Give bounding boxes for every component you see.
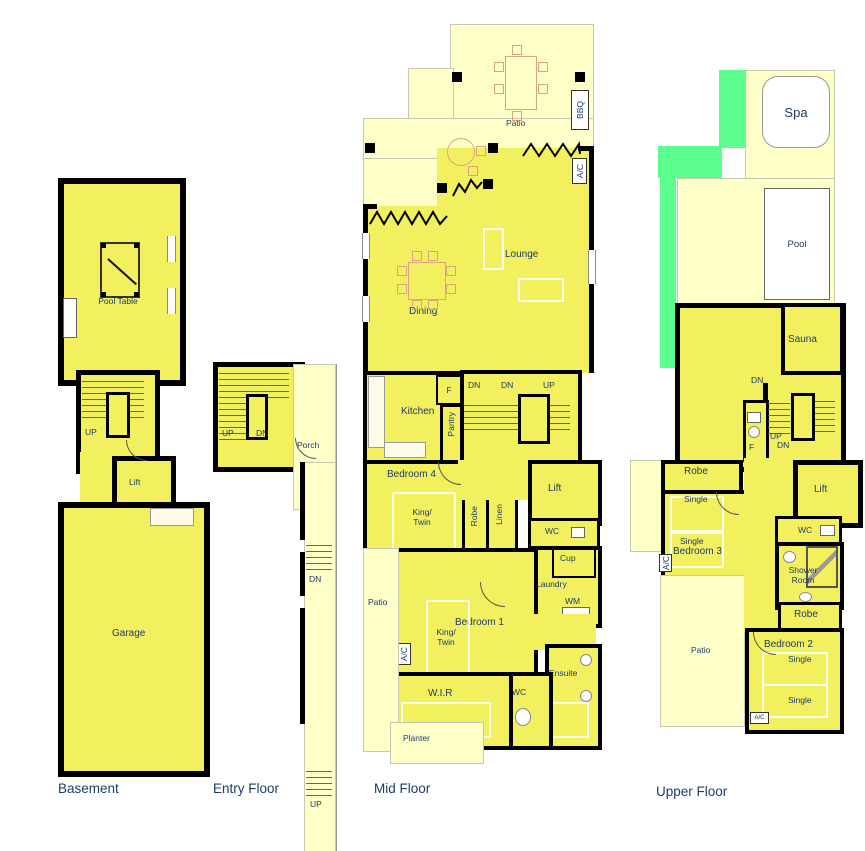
basement-lift-label: Lift (129, 478, 140, 488)
fridge-label: F (446, 385, 451, 395)
robe-label: Robe (469, 506, 479, 526)
upper-wc-label: WC (798, 526, 812, 536)
lounge-label: Lounge (505, 249, 538, 260)
laundry-label: Laundry (536, 580, 567, 590)
ac-label: A/C (754, 715, 764, 721)
entry-up-label: UP (222, 429, 234, 439)
wir-label: W.I.R (428, 688, 452, 699)
ac-label: A/C (661, 556, 671, 570)
patio-chair (494, 84, 504, 94)
dining-chair (428, 251, 438, 261)
fridge-box: F (436, 375, 462, 405)
patio-chair (538, 84, 548, 94)
mid-up-label: UP (543, 381, 555, 391)
lawn-strip (719, 70, 745, 148)
walkway-wall (300, 462, 305, 540)
upper-stair-treads (768, 398, 790, 434)
dining-chair (446, 284, 456, 294)
bedroom2-single-label: Single (788, 655, 812, 665)
shower-room-label: Shower Room (777, 566, 829, 585)
garage-room (58, 502, 210, 777)
walkway-fence-line (336, 364, 337, 851)
patio-post (483, 179, 493, 189)
shower-room-toilet (783, 551, 796, 563)
pool-label: Pool (787, 239, 806, 250)
dining-chair (428, 300, 438, 310)
patio-post (488, 143, 498, 153)
basement-title: Basement (58, 781, 119, 796)
linen-label: Linen (494, 504, 504, 525)
walkway-up-label: UP (310, 800, 322, 810)
dining-chair (412, 251, 422, 261)
ac-unit-bedroom3: A/C (659, 554, 672, 572)
patio-post (575, 72, 585, 82)
kitchenette-hob (748, 426, 760, 438)
upper-side-wing (630, 460, 664, 552)
lounge-sofa (518, 278, 564, 302)
pool: Pool (764, 188, 830, 300)
pool-cue (107, 258, 137, 285)
sauna-label: Sauna (788, 334, 817, 345)
bedroom4-bed-label: King/ Twin (404, 508, 440, 527)
shower-room-basin (799, 592, 812, 602)
kitchen-bench (384, 442, 426, 458)
mid-lift (528, 460, 602, 526)
basement-window (167, 288, 176, 314)
patio-post (452, 72, 462, 82)
ac-label: A/C (575, 164, 585, 178)
wm-label: WM (565, 597, 580, 607)
mid-hall (458, 460, 534, 500)
bedroom3-single-label: Single (684, 495, 708, 505)
mid-dn-label2: DN (501, 381, 513, 391)
bedroom3-label: Bedroom 3 (673, 546, 722, 557)
mid-stair-void (518, 394, 550, 444)
floor-plan-canvas: Pool Table UP Lift Garage Basement UP DN… (0, 0, 865, 851)
bedroom4-label: Bedroom 4 (387, 469, 436, 480)
upper-lift-label: Lift (814, 484, 827, 495)
entry-dn-label: DN (256, 429, 268, 439)
garage-label: Garage (112, 628, 145, 639)
mid-lift-label: Lift (548, 483, 561, 494)
upper-robe-top-label: Robe (684, 466, 708, 477)
pantry-label: Pantry (446, 412, 456, 437)
ensuite-label: Ensuite (549, 669, 577, 679)
ac-label: A/C (399, 647, 409, 661)
patio-chair (494, 62, 504, 72)
ac-unit-bedroom2: A/C (750, 712, 769, 724)
patio-round-table (447, 138, 475, 166)
upper-stair-void (791, 393, 815, 441)
kitchen-counter (368, 376, 385, 448)
bbq-unit: BBQ (571, 90, 589, 130)
wc2-toilet (515, 708, 531, 726)
basement-hall (80, 452, 116, 506)
bbq-label: BBQ (575, 101, 585, 119)
dining-table (408, 262, 446, 300)
pool-table-corner (134, 243, 139, 248)
mid-wc2-label: WC (512, 688, 526, 698)
dining-window (362, 233, 370, 259)
mid-dn-label: DN (468, 381, 480, 391)
bedroom1-bed-label: King/ Twin (428, 628, 464, 647)
mid-stair-treads (464, 400, 518, 430)
walkway-stairs-dn (306, 540, 332, 574)
lawn-strip (660, 176, 676, 368)
dining-chair (397, 266, 407, 276)
basement-window-well (63, 298, 77, 338)
ensuite-basin (580, 654, 592, 666)
lounge-cabinet (483, 228, 504, 270)
upper-dn-label: DN (751, 376, 763, 386)
dining-window (362, 296, 370, 322)
spa-label: Spa (784, 105, 807, 120)
basement-up-label: UP (85, 428, 97, 438)
mid-patio-strip-label: Patio (368, 598, 387, 608)
upper-f-label: F (749, 443, 754, 453)
ensuite-toilet (580, 690, 592, 702)
lounge-window (588, 250, 596, 284)
lawn-strip (658, 146, 722, 178)
walkway-stairs-up (306, 766, 332, 800)
walkway-wall (300, 552, 305, 596)
entry-title: Entry Floor (213, 781, 279, 796)
patio-post (437, 183, 447, 193)
kitchen-label: Kitchen (401, 406, 434, 417)
walkway-dn-label: DN (309, 575, 321, 585)
mid-wc-basin (571, 527, 585, 538)
mid-patio-step (408, 68, 454, 122)
upper-robe-lower-label: Robe (794, 609, 818, 620)
basement-window (167, 236, 176, 262)
kitchenette-sink (747, 412, 761, 423)
pool-table-label: Pool Table (95, 297, 141, 307)
patio-chair (468, 166, 478, 176)
walkway-wall (300, 608, 305, 724)
patio-chair (538, 62, 548, 72)
garage-shelf (150, 508, 194, 526)
mid-patio-label: Patio (506, 119, 525, 129)
basement-stair-void (106, 392, 130, 438)
upper-title: Upper Floor (656, 784, 727, 799)
patio-post (365, 143, 375, 153)
ac-unit-lounge: A/C (572, 158, 587, 184)
mid-wc-label: WC (545, 527, 559, 537)
dining-chair (397, 284, 407, 294)
pool-table (100, 242, 140, 298)
spa: Spa (762, 76, 830, 148)
upper-stairs-dn-label: DN (777, 441, 789, 451)
dining-chair (446, 266, 456, 276)
cup-label: Cup (560, 554, 576, 564)
upper-wc-basin (820, 525, 835, 536)
dining-chair (412, 300, 422, 310)
patio-table (505, 56, 537, 110)
upper-patio-label: Patio (691, 646, 710, 656)
pool-table-corner (101, 243, 106, 248)
mid-title: Mid Floor (374, 781, 430, 796)
patio-chair (476, 146, 486, 156)
bedroom2-single-label2: Single (788, 696, 812, 706)
planter-label: Planter (403, 734, 430, 744)
patio-chair (512, 45, 522, 55)
ensuite-shower (551, 702, 589, 738)
